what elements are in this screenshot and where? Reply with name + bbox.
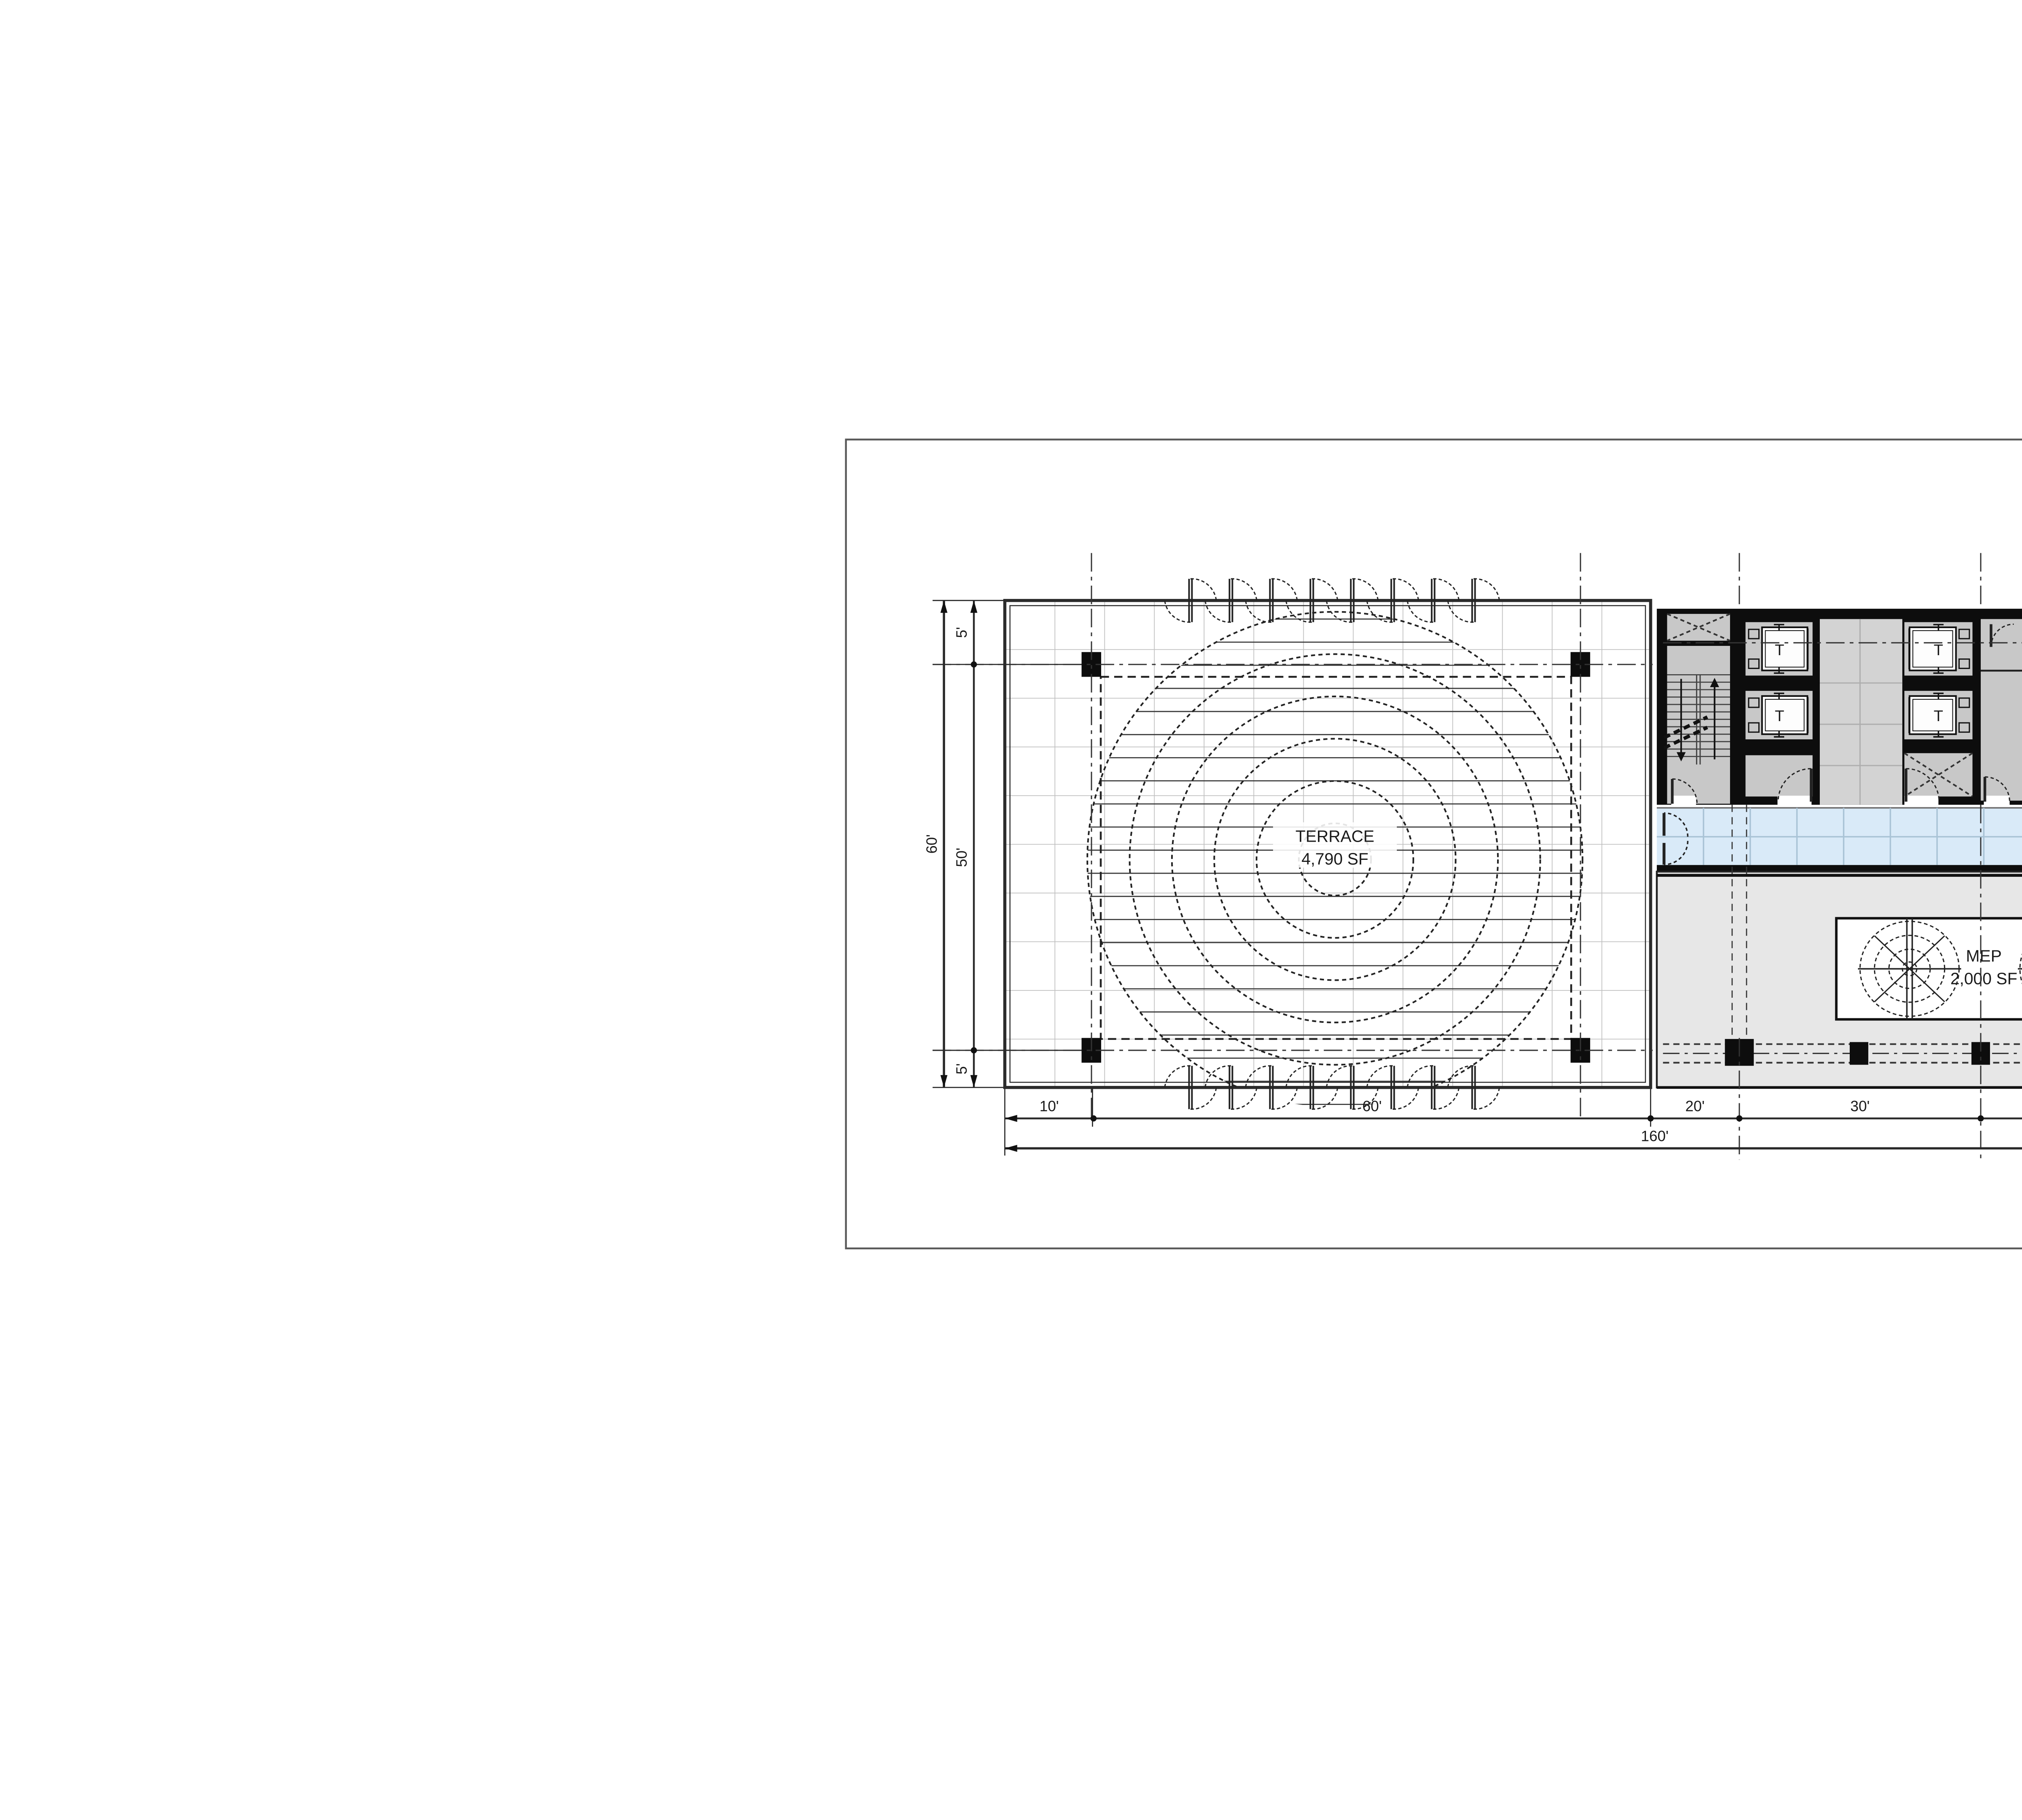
dim-60: 60' (1362, 1098, 1382, 1114)
cab-label-1: T (1775, 641, 1784, 659)
dim-5-bottom: 5' (953, 1063, 970, 1074)
dim-5-top: 5' (953, 627, 970, 638)
glazed-corridor (1657, 808, 2022, 872)
terrace-area-label: 4,790 SF (1301, 850, 1368, 868)
mep-area-label: 2,000 SF (1950, 969, 2018, 988)
terrace-label: TERRACE (1296, 827, 1375, 846)
dim-30-a: 30' (1851, 1098, 1870, 1114)
mep-label: MEP (1966, 947, 2001, 965)
dim-50: 50' (953, 848, 970, 867)
cab-label-4: T (1934, 707, 1943, 725)
terrace-area: TERRACE 4,790 SF (1005, 579, 1651, 1109)
restrooms (1981, 619, 2022, 801)
dim-10-left: 10' (1039, 1098, 1059, 1114)
floor-plan-drawing: TERRACE 4,790 SF (0, 0, 2022, 1820)
building-core (1657, 609, 2022, 805)
dim-160-total: 160' (1641, 1128, 1669, 1144)
stair-left (1664, 646, 1730, 804)
elevator-lobby (1820, 619, 1902, 805)
mep-area: MEP 2,000 SF (1657, 872, 2022, 1088)
cab-label-3: T (1934, 641, 1943, 659)
dim-60-total: 60' (923, 834, 940, 854)
cab-label-2: T (1775, 707, 1784, 725)
dim-20: 20' (1685, 1098, 1705, 1114)
